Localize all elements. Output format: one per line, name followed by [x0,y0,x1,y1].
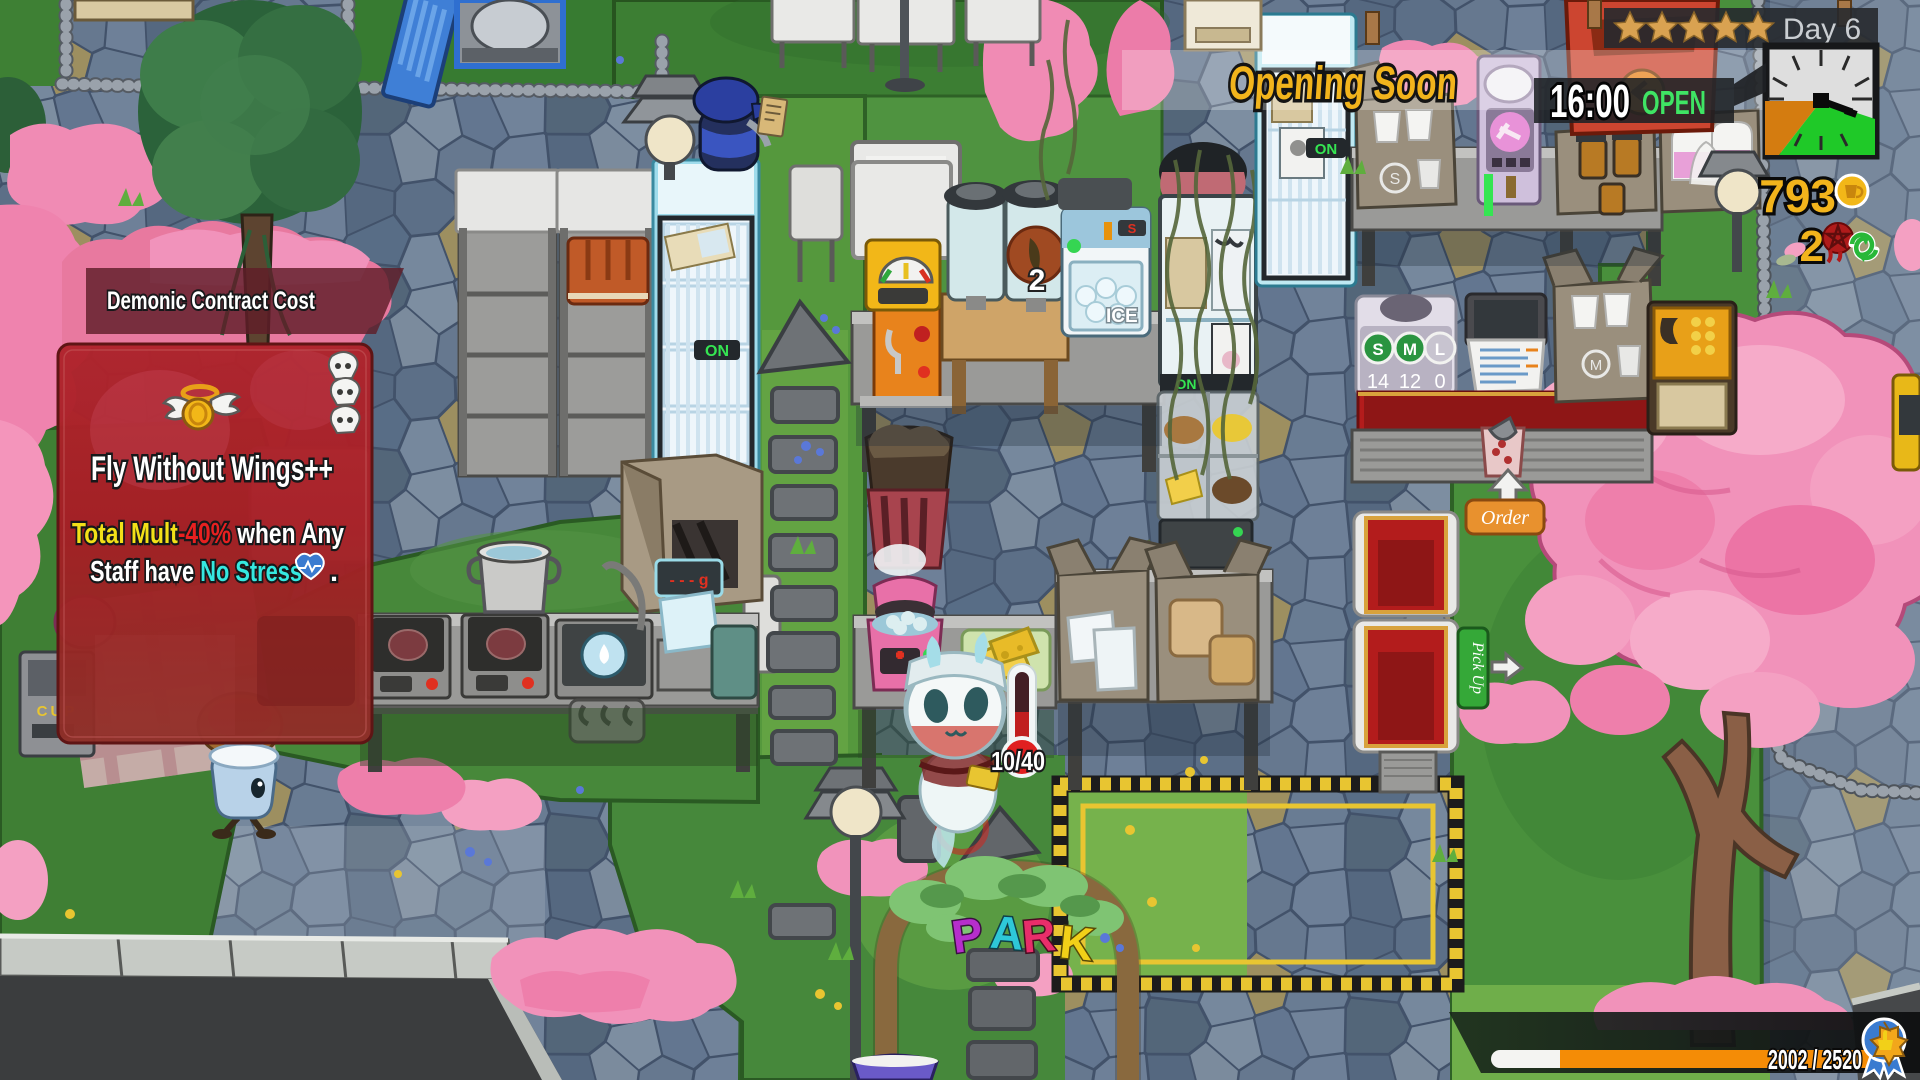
svg-text:793: 793 [1759,170,1836,222]
svg-text:M: M [1590,357,1603,374]
svg-text:- - - g: - - - g [669,572,708,589]
svg-text:ON: ON [1315,141,1338,158]
svg-text:ICE: ICE [1106,306,1138,327]
svg-text:Pick Up: Pick Up [1469,641,1486,694]
svg-text:Total Mult-40% when Any: Total Mult-40% when Any [72,518,344,550]
svg-text:14: 14 [1367,371,1389,393]
svg-text:OPEN: OPEN [1642,84,1706,121]
svg-text:16:00: 16:00 [1550,75,1630,127]
svg-text:M: M [1403,340,1417,359]
svg-text:Opening Soon: Opening Soon [1227,56,1459,109]
svg-text:S: S [1372,340,1383,359]
svg-text:2002 / 2520: 2002 / 2520 [1768,1044,1862,1075]
svg-text:L: L [1435,340,1445,359]
svg-text:ON: ON [705,343,729,360]
svg-text:10/40: 10/40 [991,746,1045,776]
svg-text:Day 6: Day 6 [1783,13,1861,46]
svg-text:2: 2 [1029,264,1046,297]
svg-text:Staff have No Stress: Staff have No Stress [90,556,302,588]
svg-text:0: 0 [1434,371,1445,393]
svg-text:12: 12 [1399,371,1421,393]
svg-text:Demonic Contract Cost: Demonic Contract Cost [107,287,316,315]
svg-text:S: S [1390,171,1401,188]
svg-text:Fly Without Wings++: Fly Without Wings++ [91,450,333,488]
svg-text:S: S [1128,221,1137,236]
svg-text:R: R [1020,908,1058,963]
svg-text:Order: Order [1481,507,1529,529]
svg-text:K: K [1057,915,1095,970]
svg-text:.: . [330,556,338,588]
